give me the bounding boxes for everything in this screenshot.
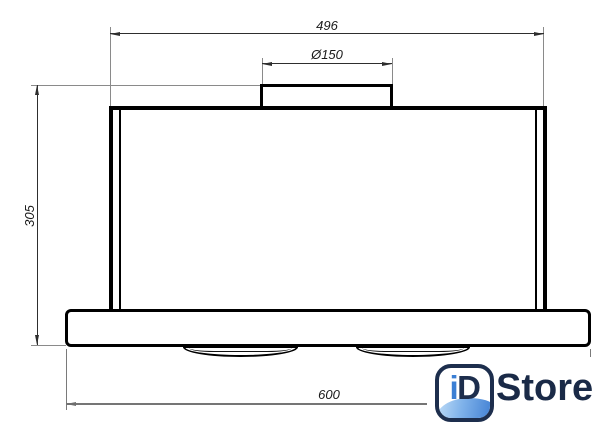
ext-line-305-bottom bbox=[31, 345, 66, 346]
label-duct-diameter: Ø150 bbox=[291, 48, 363, 62]
dim-arrow-496-right bbox=[534, 32, 544, 36]
hood-top-edge bbox=[109, 106, 547, 110]
dim-line-305 bbox=[37, 85, 38, 345]
dim-arrow-305-top bbox=[35, 85, 39, 95]
dim-arrow-305-bottom bbox=[35, 335, 39, 345]
hood-right-wall-outer bbox=[543, 106, 547, 310]
hood-right-wall-inner bbox=[535, 109, 537, 309]
hood-lamp-left-glass bbox=[189, 348, 292, 353]
dim-arrow-600-left bbox=[66, 402, 76, 406]
ext-line-496-right bbox=[543, 27, 544, 107]
idstore-logo-letter-i: i bbox=[449, 369, 457, 406]
ext-line-600-left bbox=[66, 349, 67, 410]
hood-lamp-left bbox=[183, 344, 298, 357]
label-top-width: 496 bbox=[297, 19, 357, 33]
hood-left-wall-inner bbox=[119, 109, 121, 309]
hood-base-visor bbox=[65, 309, 591, 347]
idstore-logo-icon: iD bbox=[435, 364, 494, 422]
idstore-logo-monogram: iD bbox=[439, 371, 490, 404]
dim-arrow-150-right bbox=[382, 62, 392, 66]
technical-drawing-canvas: 496 Ø150 305 600 iD Store bbox=[0, 0, 616, 434]
dim-line-496 bbox=[110, 33, 544, 34]
hood-lamp-right bbox=[356, 344, 470, 357]
idstore-logo: iD Store bbox=[427, 357, 616, 429]
dim-arrow-150-left bbox=[262, 62, 272, 66]
ext-line-150-right bbox=[392, 58, 393, 85]
label-bottom-width: 600 bbox=[299, 388, 359, 402]
idstore-logo-wordmark: Store bbox=[496, 369, 593, 407]
ext-line-496-left bbox=[110, 27, 111, 107]
ext-line-305-top bbox=[31, 85, 260, 86]
dim-arrow-496-left bbox=[110, 32, 120, 36]
hood-lamp-right-glass bbox=[362, 348, 464, 353]
hood-left-wall-outer bbox=[109, 106, 113, 310]
idstore-logo-letter-d: D bbox=[457, 369, 479, 406]
label-height: 305 bbox=[23, 194, 37, 238]
dim-line-150 bbox=[262, 63, 392, 64]
